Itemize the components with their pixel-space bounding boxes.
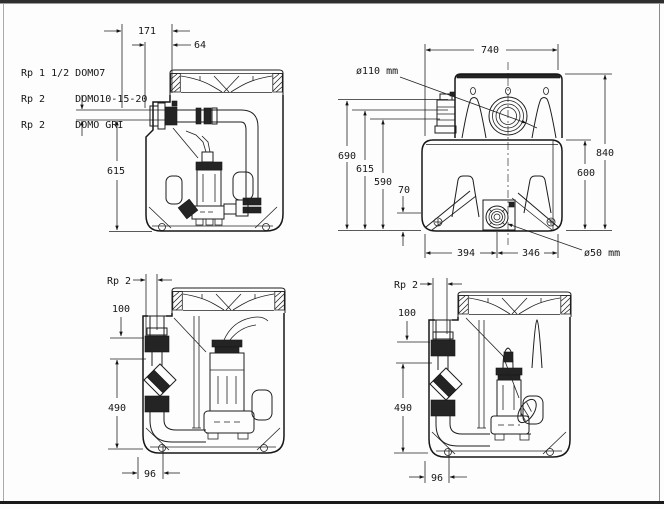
- submersible-pump-bl: [174, 316, 268, 439]
- submersible-pump-br: [466, 318, 540, 440]
- lower-tank-front: [422, 140, 562, 231]
- dim-615-label: 615: [107, 166, 125, 177]
- dim-394-label: 394: [457, 248, 475, 259]
- dim-615-front-label: 615: [356, 164, 374, 175]
- dimensions-left: 615: [76, 95, 170, 232]
- dimensions-br: Rp 2 100 490 96: [394, 278, 467, 484]
- view-front: 740 ø110 mm 690 615 590: [338, 44, 620, 259]
- vertical-discharge-pipe-bl: [144, 316, 206, 442]
- submersible-pump: [173, 128, 248, 225]
- dim-590-label: 590: [374, 177, 392, 188]
- tank-lid-br: [458, 292, 571, 317]
- dim-690-label: 690: [338, 151, 356, 162]
- dimensions-bottom-front: 394 346 ø50 mm: [425, 224, 620, 259]
- dim-490-bl-label: 490: [108, 403, 126, 414]
- dim-600-label: 600: [577, 168, 595, 179]
- drain-boss: [486, 206, 508, 228]
- dim-346-label: 346: [522, 248, 540, 259]
- vertical-discharge-pipe-br: [430, 320, 490, 446]
- dim-100-br-label: 100: [398, 308, 416, 319]
- dim-96-br-label: 96: [431, 473, 443, 484]
- upper-access-box: [435, 74, 562, 138]
- tank-lid-bl: [172, 288, 285, 313]
- dim-70-label: 70: [398, 185, 410, 196]
- dim-740-label: 740: [481, 45, 499, 56]
- float-rope-bl: [174, 318, 206, 352]
- float-rope: [173, 128, 198, 158]
- dim-171-label: 171: [138, 26, 156, 37]
- dimension-width: 740: [425, 44, 558, 136]
- dimensions-left-front: 690 615 590 70: [338, 100, 448, 247]
- view-side-section-bottom-right: Rp 2 100 490 96: [394, 278, 571, 484]
- drawing-page: Rp 1 1/2 DOMO7 Rp 2 DOMO10-15-20 Rp 2 DO…: [0, 0, 664, 509]
- discharge-pipe-assembly: [150, 101, 261, 213]
- discharge-connection-front: [435, 92, 456, 133]
- drain-diameter-label: ø50 mm: [584, 248, 620, 259]
- float-switch: [514, 396, 540, 425]
- dimensions-top: 171 64: [104, 24, 206, 108]
- view-side-section-top: 171 64 615: [76, 24, 283, 232]
- port-label-br: Rp 2: [394, 280, 418, 291]
- dim-100-bl-label: 100: [112, 304, 130, 315]
- dim-64-label: 64: [194, 40, 206, 51]
- view-side-section-bottom-left: Rp 2 100 490 96: [107, 274, 285, 480]
- inlet-diameter-label: ø110 mm: [356, 66, 398, 77]
- dim-490-br-label: 490: [394, 403, 412, 414]
- technical-drawing: 171 64 615: [0, 0, 664, 509]
- dim-96-bl-label: 96: [144, 469, 156, 480]
- tank-lid: [170, 70, 283, 95]
- dim-840-label: 840: [596, 148, 614, 159]
- port-label-bl: Rp 2: [107, 276, 131, 287]
- dimensions-right-front: 840 600: [565, 74, 614, 231]
